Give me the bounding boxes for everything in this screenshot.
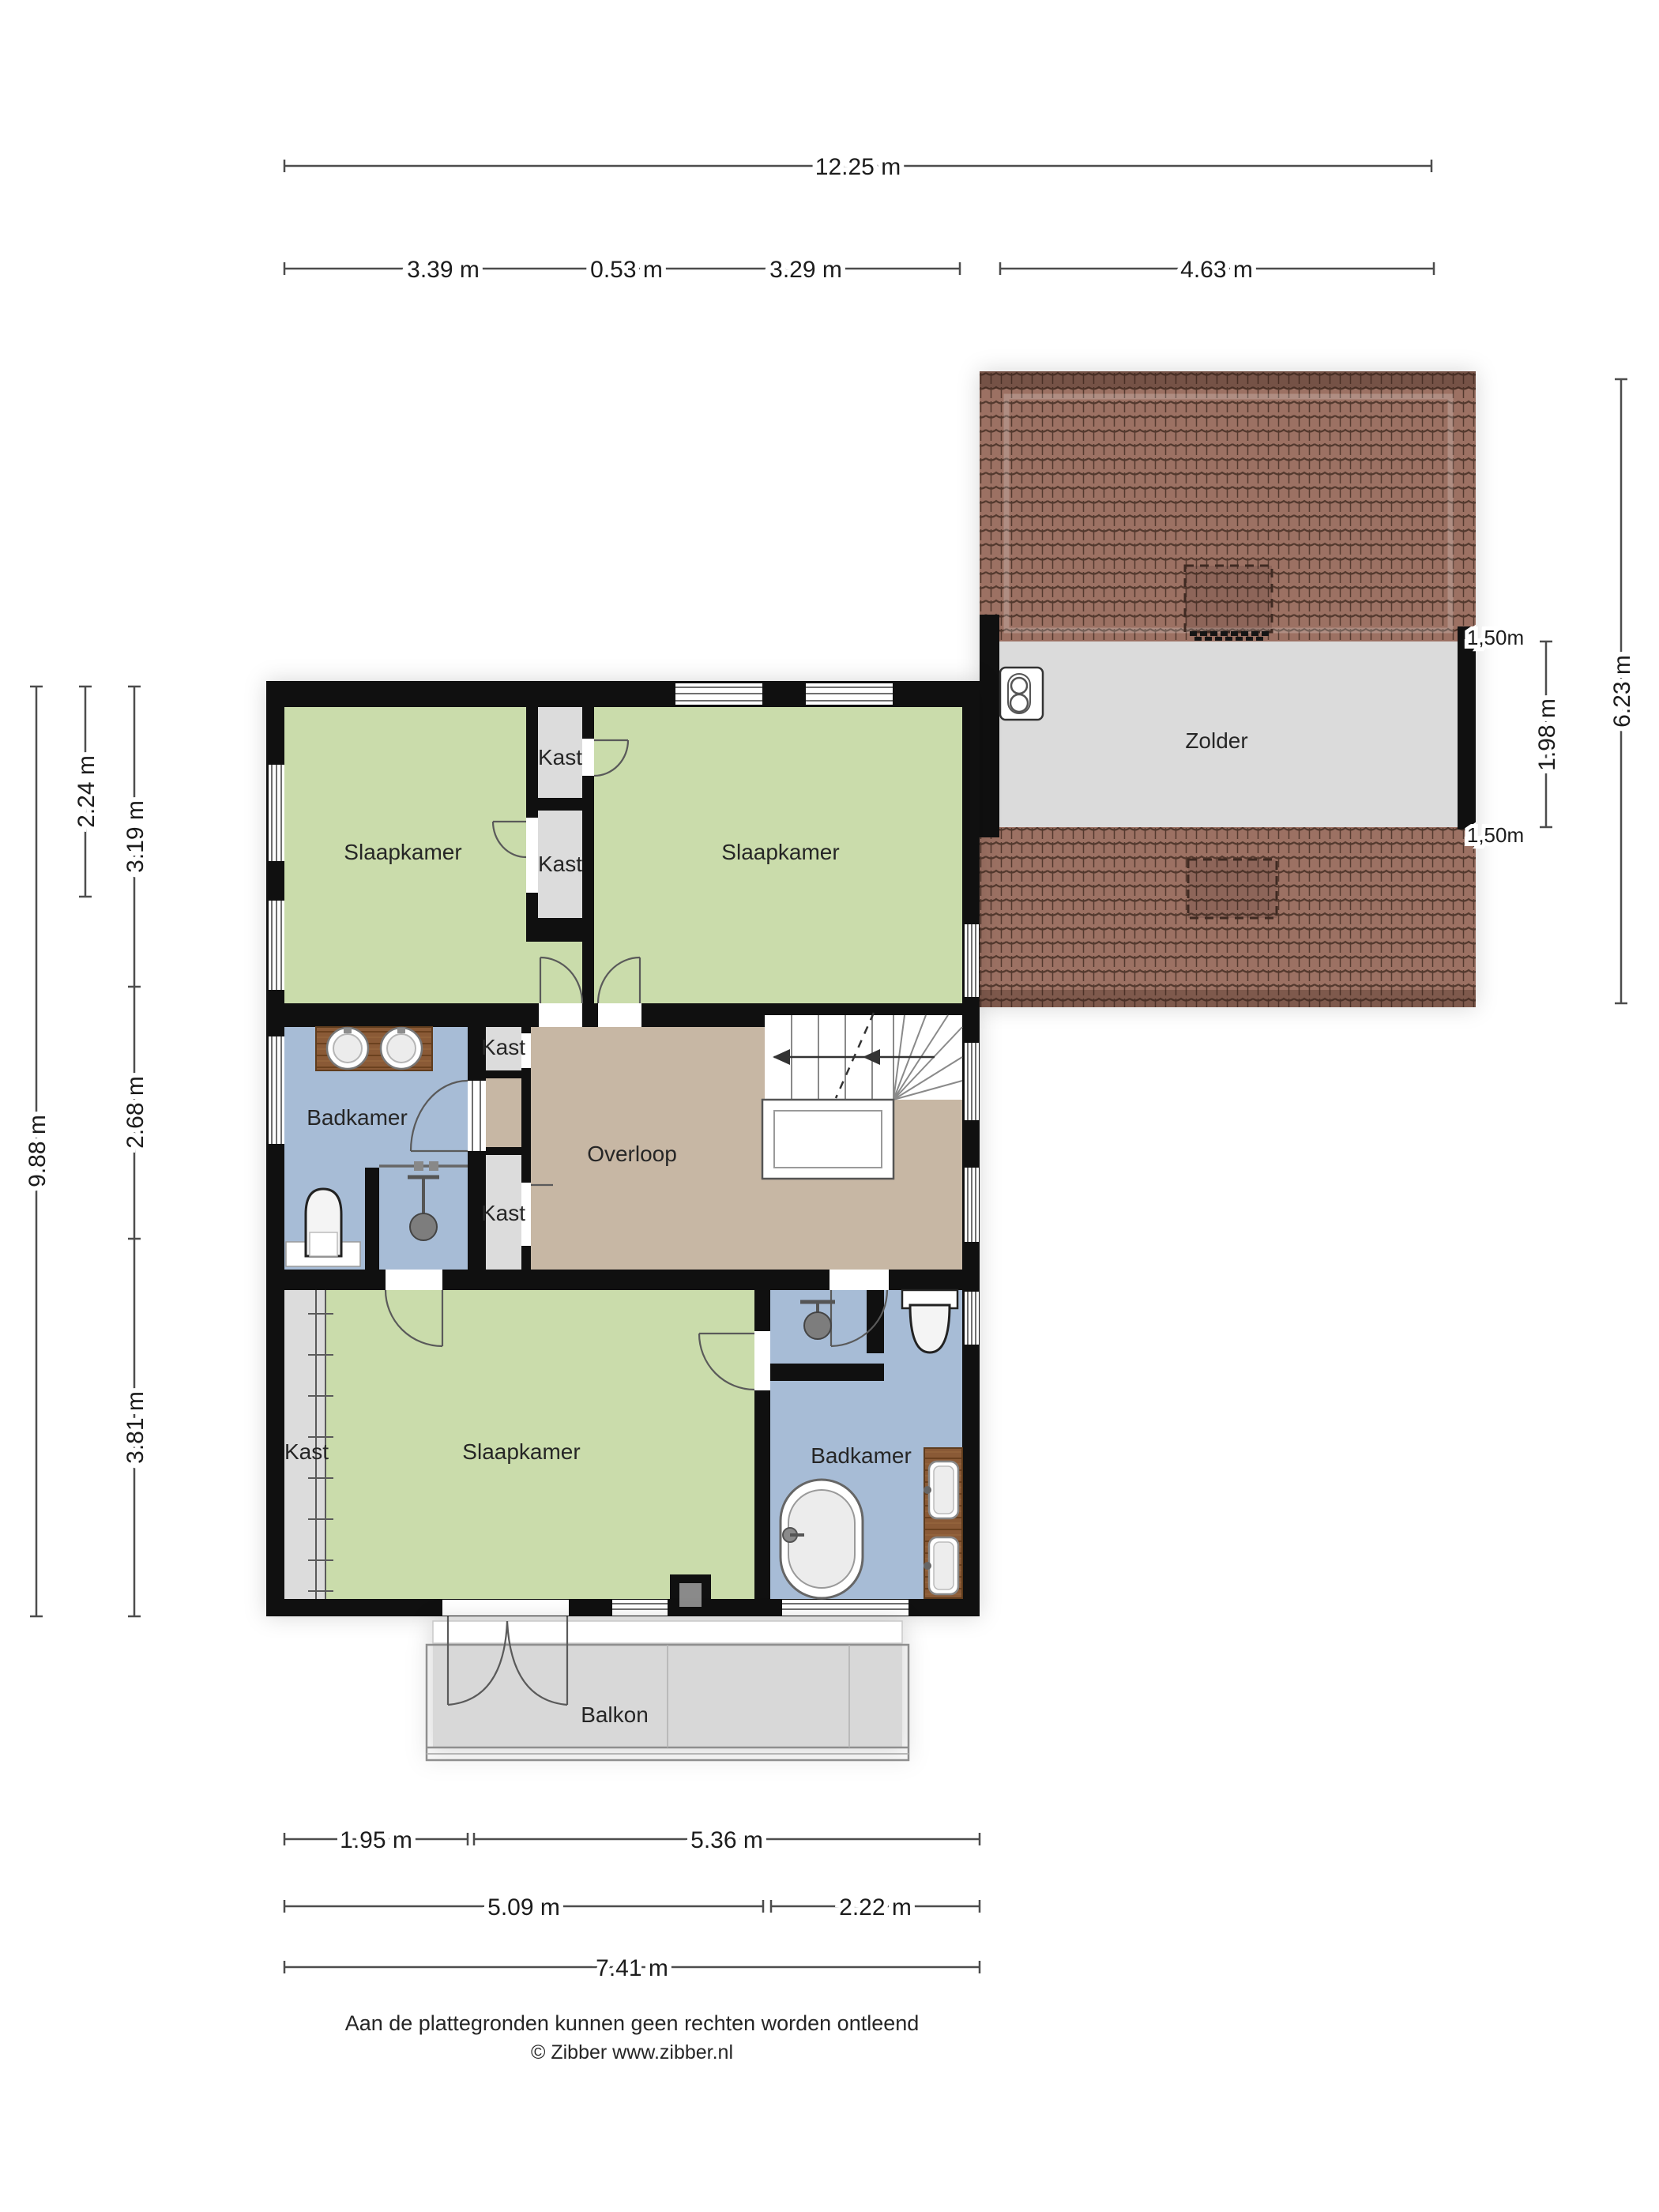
dim-left-total: 9.88 m: [24, 687, 51, 1616]
attic-wing: Zolder: [980, 371, 1476, 1007]
dim-label: 4.63 m: [1180, 257, 1253, 283]
roof-ridge-band: [980, 371, 1476, 389]
closet-s-label: Kast: [284, 1439, 329, 1464]
window: [269, 765, 284, 861]
dim-label: 3.19 m: [122, 800, 149, 873]
bathroom-s-label: Badkamer: [811, 1443, 912, 1468]
roof-eave-band: [980, 990, 1476, 1007]
window: [269, 901, 284, 990]
dim-label: 9.88 m: [24, 1115, 51, 1187]
window: [965, 1168, 979, 1242]
vanity-s: [924, 1448, 962, 1598]
window: [782, 1600, 908, 1616]
main-floor: Slaapkamer Slaapkamer Kast Kast Badkamer…: [266, 681, 980, 1616]
dim-label: 6.23 m: [1609, 655, 1635, 728]
dim-label: 3.81 m: [122, 1391, 149, 1464]
balcony-label: Balkon: [581, 1702, 649, 1727]
dim-label: 2.24 m: [73, 755, 100, 828]
window: [965, 1292, 979, 1345]
dim-label: 7.41 m: [596, 1955, 668, 1981]
knee-wall-top-label: 1,50m: [1467, 626, 1524, 649]
bedroom-nw-floor-ext: [526, 942, 582, 1003]
dim-label: 1.95 m: [340, 1827, 412, 1853]
window: [269, 1036, 284, 1144]
dim-attic-floor: 1.98 m: [1534, 641, 1560, 827]
dim-top-segments: 3.39 m 0.53 m 3.29 m 4.63 m: [284, 257, 1434, 283]
window: [965, 1043, 979, 1120]
window: [806, 683, 893, 705]
boiler-icon: [1000, 668, 1043, 720]
attic-label: Zolder: [1185, 728, 1247, 753]
footer-copyright: © Zibber www.zibber.nl: [531, 2041, 733, 2063]
dim-label: 2.22 m: [839, 1894, 912, 1920]
dim-bottom-total: 7.41 m: [284, 1955, 980, 1981]
closet-mid-upper-label: Kast: [481, 1035, 525, 1059]
dim-label: 12.25 m: [815, 154, 901, 180]
closet-top-lower-label: Kast: [538, 852, 582, 876]
dim-left-window: 2.24 m: [73, 687, 100, 897]
bathroom-mid-label: Badkamer: [307, 1105, 408, 1130]
closet-top-upper-label: Kast: [538, 745, 582, 769]
bedroom-ne-label: Slaapkamer: [721, 840, 839, 864]
floorplan-page: Zolder: [0, 0, 1659, 2212]
dim-left-segments: 3.19 m 2.68 m 3.81 m: [122, 687, 149, 1616]
window: [675, 683, 762, 705]
dim-label: 5.09 m: [487, 1894, 560, 1920]
stairwell-void: [762, 1100, 893, 1179]
double-sink-counter: [316, 1027, 432, 1070]
chimney: [670, 1574, 711, 1616]
bedroom-nw-label: Slaapkamer: [344, 840, 461, 864]
landing-label: Overloop: [587, 1142, 677, 1166]
floorplan-canvas: Zolder: [0, 0, 1659, 2212]
dim-label: 2.68 m: [122, 1076, 149, 1149]
footer-disclaimer: Aan de plattegronden kunnen geen rechten…: [345, 2011, 920, 2035]
skylight-lower: [1188, 860, 1277, 918]
dim-label: 3.39 m: [407, 257, 480, 283]
knee-wall-bottom-label: 1,50m: [1467, 823, 1524, 847]
bathtub: [781, 1480, 863, 1598]
dim-bottom-row2: 5.09 m 2.22 m: [284, 1894, 980, 1920]
skylight-upper: [1185, 566, 1272, 641]
door-nook-floor: [486, 1078, 521, 1147]
window: [965, 924, 979, 997]
window: [612, 1600, 668, 1616]
dim-right-total: 6.23 m: [1609, 379, 1635, 1003]
windows-left-wall: [269, 765, 284, 1144]
balcony: Balkon: [427, 1616, 908, 1760]
dim-bottom-row1: 1.95 m 5.36 m: [284, 1827, 980, 1853]
attic-knee-wall-right: [1458, 626, 1476, 829]
dim-label: 3.29 m: [769, 257, 842, 283]
bedroom-s-label: Slaapkamer: [462, 1439, 580, 1464]
dim-label: 5.36 m: [690, 1827, 763, 1853]
dim-label: 0.53 m: [590, 257, 663, 283]
closet-mid-lower-label: Kast: [481, 1201, 525, 1225]
balcony-door-opening: [442, 1600, 569, 1616]
dim-label: 1.98 m: [1534, 698, 1560, 771]
dim-top-total: 12.25 m: [284, 154, 1431, 180]
attic-knee-wall-left: [980, 615, 999, 837]
